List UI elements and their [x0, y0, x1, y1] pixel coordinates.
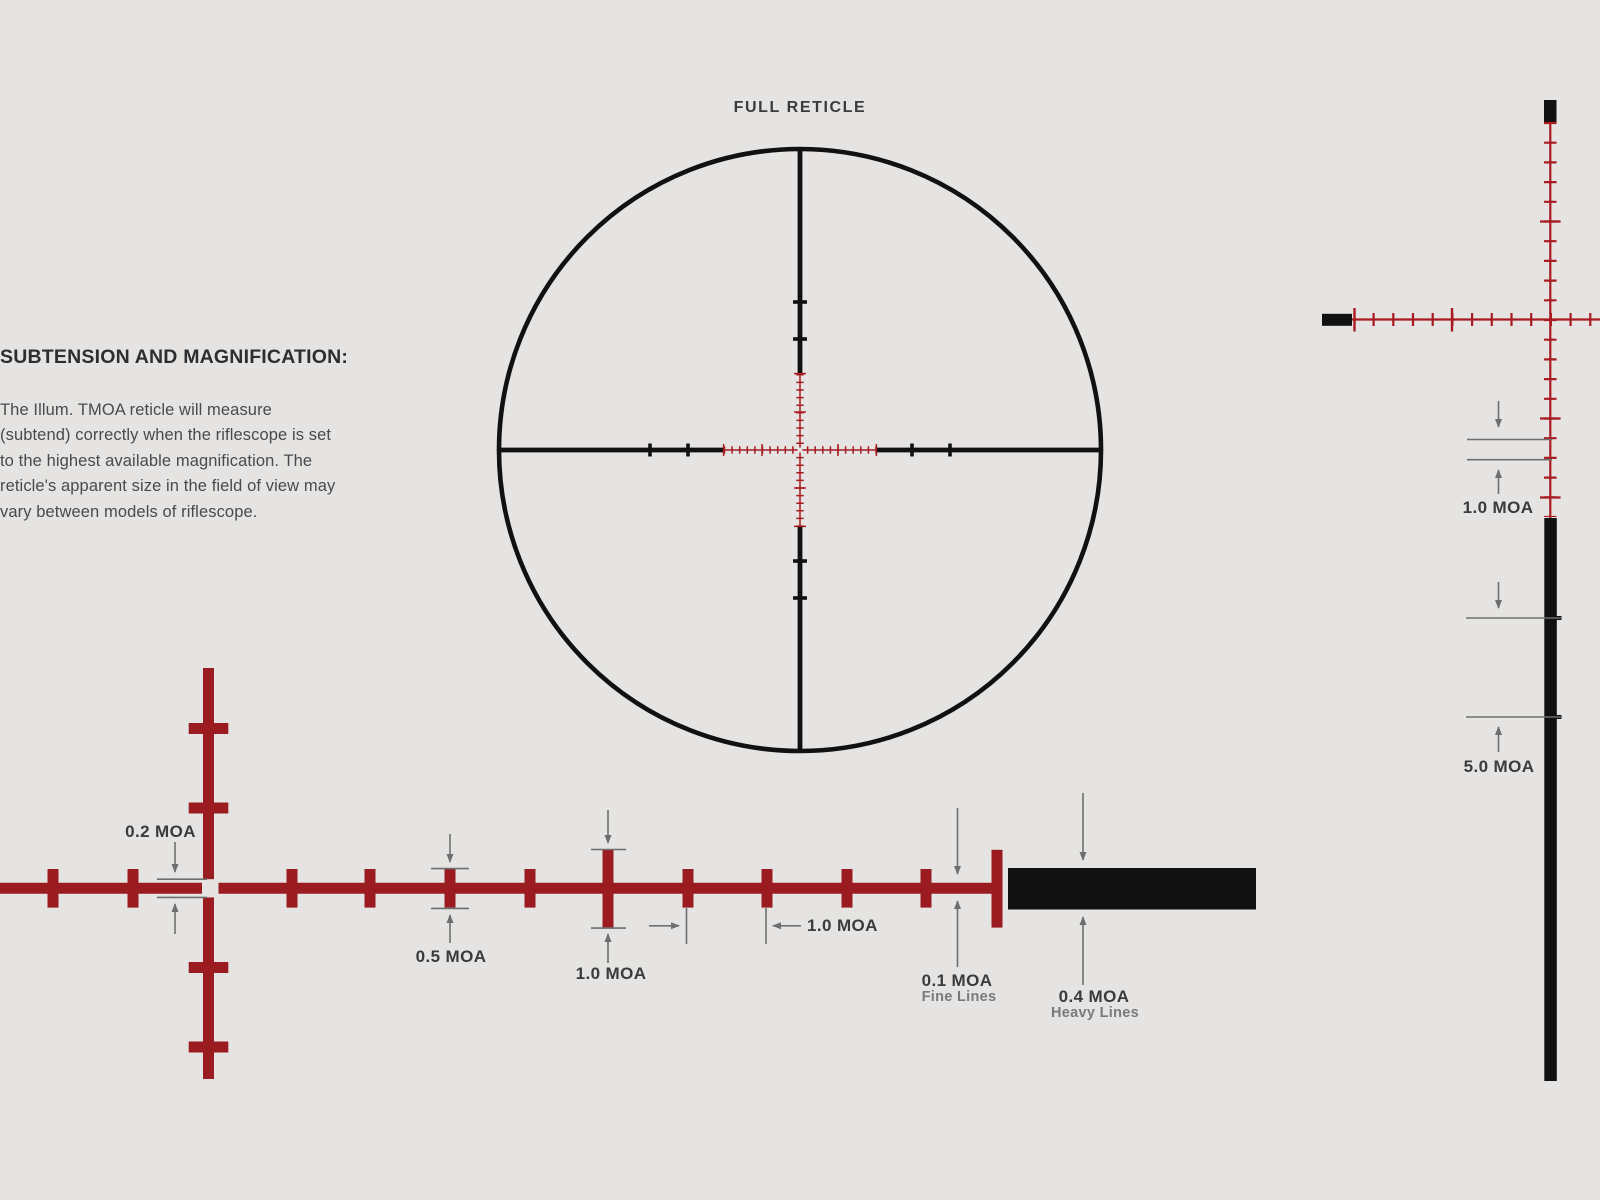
fine-center-cross	[723, 373, 878, 528]
info-heading: SUBTENSION AND MAGNIFICATION:	[0, 346, 360, 369]
label-fine-line-moa: 0.1 MOA	[922, 971, 993, 991]
top-post-bar	[1544, 100, 1557, 124]
info-line: to the highest available magnification. …	[0, 449, 360, 474]
reticle-diagram-artwork	[0, 0, 1600, 1200]
label-tall-tick-moa: 1.0 MOA	[576, 964, 647, 984]
full-reticle-diagram	[499, 149, 1101, 751]
info-paragraph: The Illum. TMOA reticle will measure (su…	[0, 398, 360, 525]
heavy-post-bar	[1008, 868, 1256, 910]
label-heavy-lines-sub: Heavy Lines	[1051, 1005, 1139, 1021]
left-post-bar	[1322, 314, 1352, 326]
full-reticle-title: FULL RETICLE	[734, 99, 867, 117]
label-tick-spacing-moa: 1.0 MOA	[807, 916, 878, 936]
info-line: (subtend) correctly when the riflescope …	[0, 423, 360, 448]
info-line: vary between models of riflescope.	[0, 500, 360, 525]
label-heavy-line-moa: 0.4 MOA	[1059, 987, 1130, 1007]
bottom-post-bar	[1544, 518, 1557, 1081]
label-side-one-moa: 1.0 MOA	[1463, 498, 1534, 518]
label-half-tick-moa: 0.5 MOA	[416, 947, 487, 967]
label-side-five-moa: 5.0 MOA	[1464, 757, 1535, 777]
reticle-subtension-page: FULL RETICLE SUBTENSION AND MAGNIFICATIO…	[0, 0, 1600, 1200]
side-detail-diagram	[1322, 100, 1600, 1081]
side-fine-lines	[1352, 122, 1600, 518]
black-crosshair-posts	[499, 149, 1101, 751]
label-center-gap-moa: 0.2 MOA	[125, 822, 196, 842]
center-gap	[202, 879, 219, 897]
label-fine-lines-sub: Fine Lines	[922, 989, 997, 1005]
info-line: reticle's apparent size in the field of …	[0, 474, 360, 499]
info-line: The Illum. TMOA reticle will measure	[0, 398, 360, 423]
subtension-info-panel: SUBTENSION AND MAGNIFICATION: The Illum.…	[0, 346, 360, 525]
